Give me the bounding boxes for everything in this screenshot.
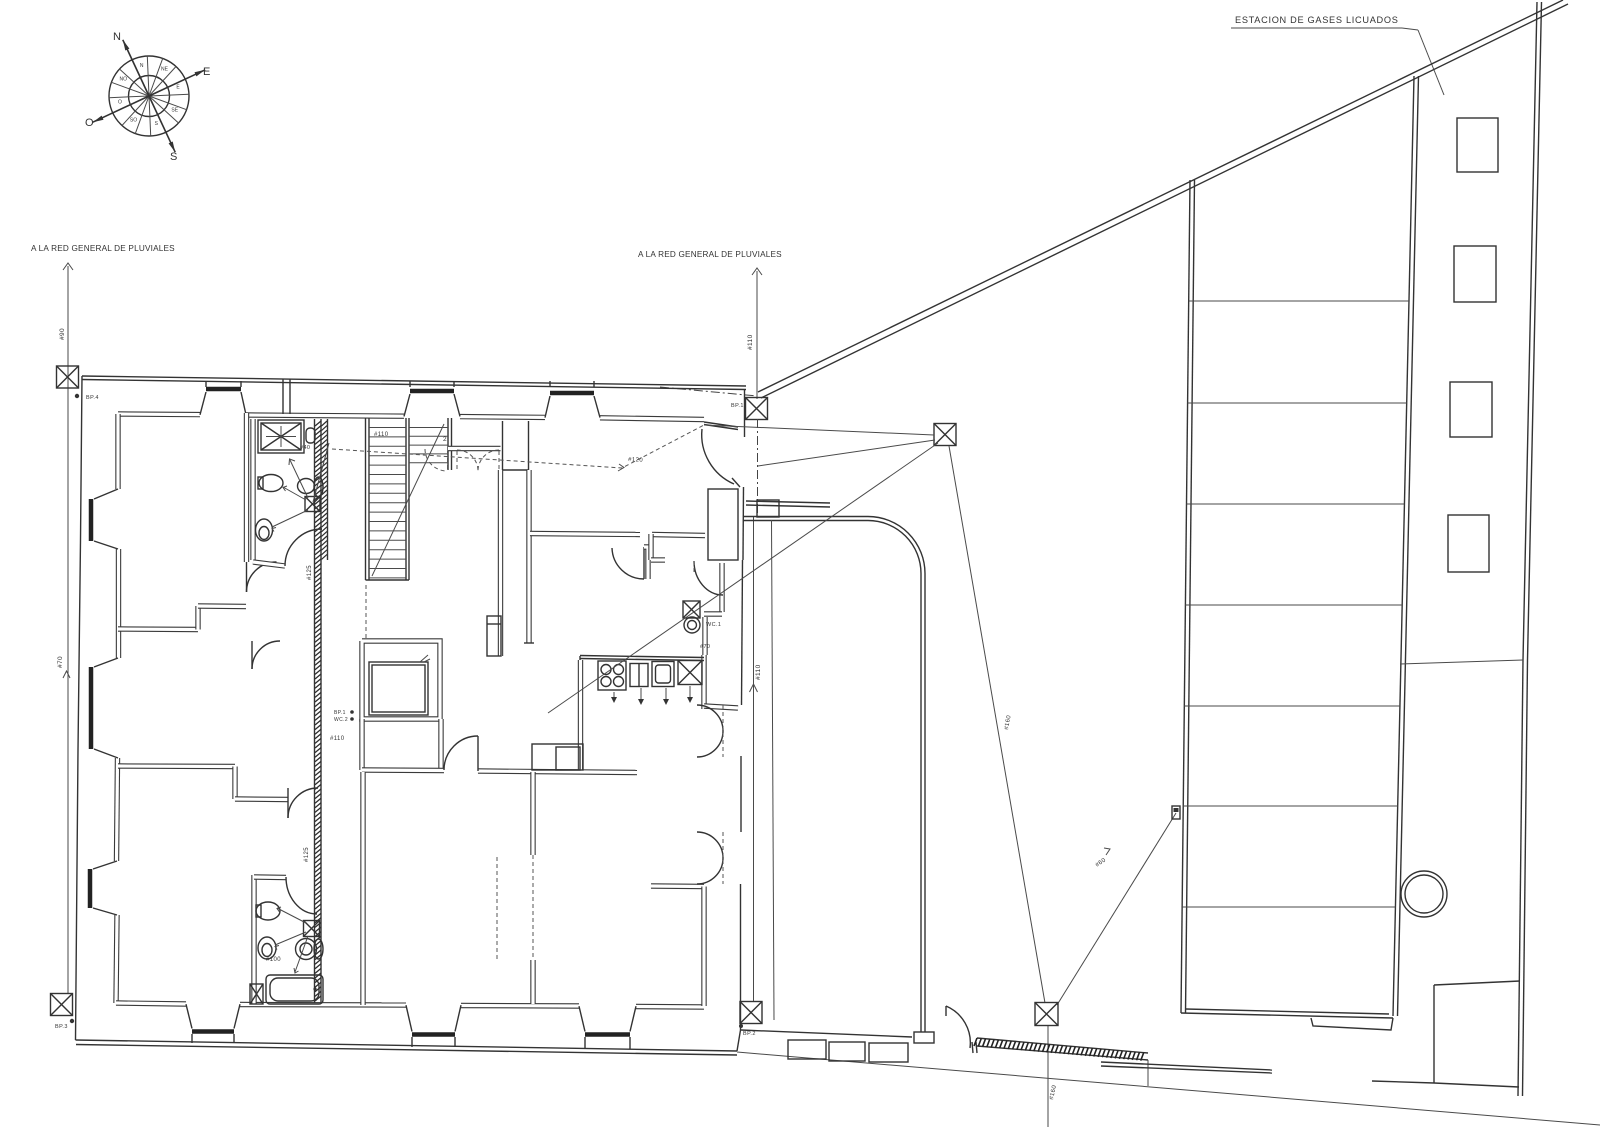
svg-text:BP.1: BP.1 (731, 403, 744, 409)
svg-text:E: E (203, 66, 210, 78)
svg-text:#40: #40 (300, 445, 310, 451)
svg-text:#70: #70 (57, 656, 64, 668)
svg-text:#110: #110 (374, 432, 389, 438)
svg-text:BP.1: BP.1 (334, 710, 346, 716)
svg-text:#90: #90 (59, 328, 66, 340)
svg-text:A LA RED GENERAL DE PLUVIALES: A LA RED GENERAL DE PLUVIALES (31, 244, 175, 253)
svg-text:NE: NE (161, 66, 169, 72)
svg-text:2: 2 (443, 436, 447, 443)
svg-text:ESTACION DE GASES LICUADOS: ESTACION DE GASES LICUADOS (1235, 15, 1399, 25)
svg-text:#110: #110 (755, 664, 762, 680)
svg-text:SE: SE (171, 108, 178, 114)
svg-text:BP.4: BP.4 (86, 395, 99, 401)
svg-text:S: S (170, 151, 177, 163)
svg-text:N: N (113, 31, 121, 43)
svg-text:#100: #100 (266, 957, 281, 963)
svg-text:#125: #125 (307, 565, 313, 580)
svg-text:O: O (118, 99, 122, 105)
svg-text:WC.2: WC.2 (334, 717, 348, 723)
svg-text:BP.3: BP.3 (55, 1024, 68, 1030)
svg-text:O: O (85, 117, 94, 129)
svg-text:NO: NO (120, 77, 128, 83)
svg-text:#110: #110 (330, 736, 345, 742)
svg-text:#110: #110 (747, 334, 754, 350)
svg-text:N: N (140, 63, 144, 69)
svg-text:#125: #125 (304, 847, 310, 862)
svg-text:#70: #70 (700, 644, 710, 650)
svg-text:SO: SO (130, 118, 137, 124)
svg-text:BP.2: BP.2 (743, 1031, 756, 1037)
svg-text:#120: #120 (628, 457, 644, 464)
svg-text:WC.1: WC.1 (706, 622, 721, 628)
svg-text:A LA RED GENERAL DE PLUVIALES: A LA RED GENERAL DE PLUVIALES (638, 250, 782, 259)
